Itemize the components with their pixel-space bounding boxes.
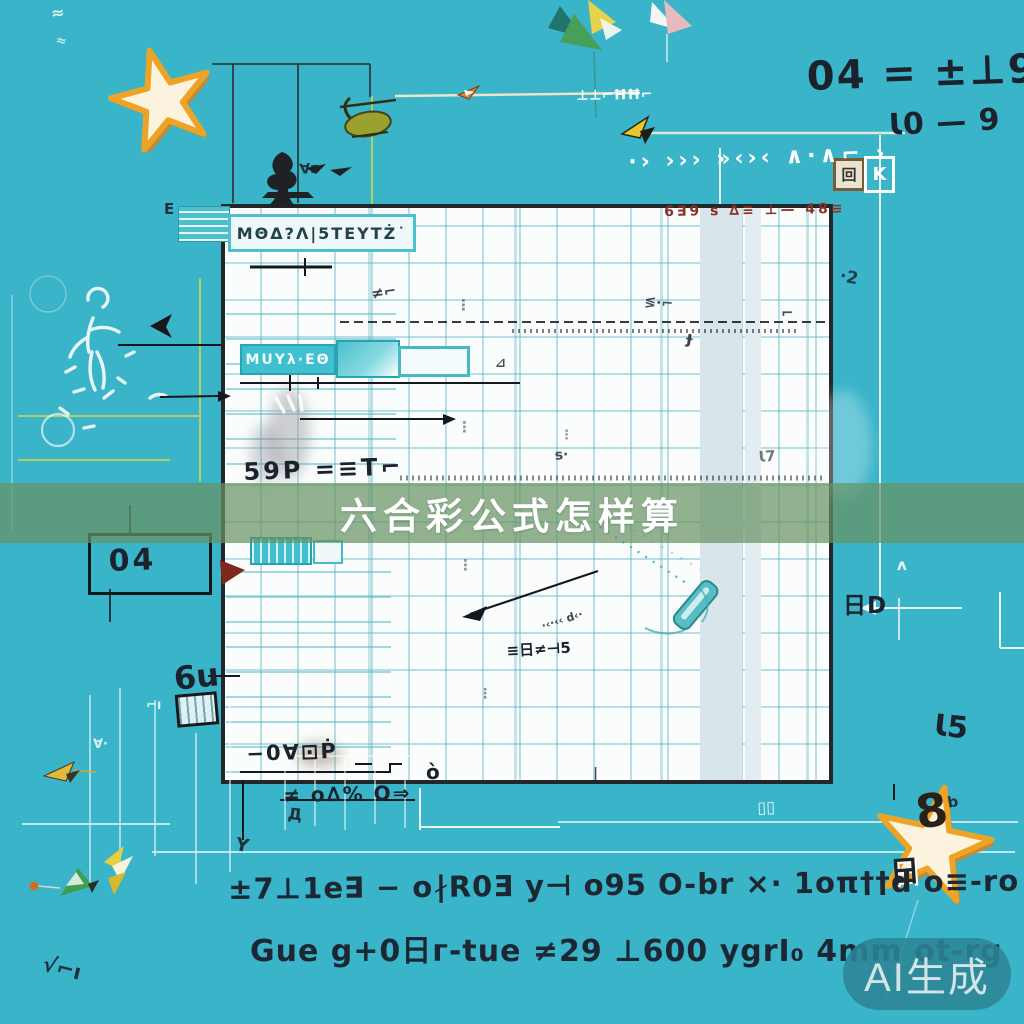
scatter-glyph: ⋮ <box>456 296 471 314</box>
scatter-glyph: ⌐ı <box>146 698 161 713</box>
scatter-glyph: ≠⌐ <box>370 282 397 303</box>
scatter-glyph: √⌐ı <box>40 952 83 985</box>
ai-watermark-label: AI生成 <box>864 945 990 1003</box>
scatter-glyph: s⋅ <box>554 447 569 464</box>
scatter-glyph: | <box>593 766 598 782</box>
scatter-glyph: ▯▯ <box>757 797 775 817</box>
scatter-glyph: ·2 <box>838 266 860 289</box>
ai-generated-illustration: ΜΘΔ?Λ|5ΤΕΥΤŻ˙ ΜUΥλ·ΕΘ 回 K 6∃9 s ∆≡ ⊥— 48… <box>0 0 1024 1024</box>
scatter-glyph: ∀· <box>93 737 108 752</box>
banner-title: 六合彩公式怎样算 <box>340 486 684 540</box>
scatter-glyph: ≈ <box>50 3 65 23</box>
scatter-glyph: ⋮ <box>560 428 573 443</box>
scatter-glyph: Y <box>234 834 251 857</box>
scatter-glyph: ʌ <box>897 556 907 574</box>
scatter-glyph: ⌐ <box>781 304 794 322</box>
scatter-glyph: ≶·⌐ <box>644 294 674 312</box>
scatter-glyph: b <box>946 792 960 812</box>
scatter-glyph: ⋮ <box>478 686 492 702</box>
scatter-glyph: Ε <box>164 200 174 218</box>
scatter-glyph: ⋮ <box>458 556 473 574</box>
scatter-glyph: ⊥⊥⌐ĦĦ⌐ <box>576 87 653 104</box>
scatter-glyph: ⊿ <box>495 356 506 371</box>
scatter-glyph: Ɩ7 <box>758 447 776 466</box>
scatter-glyph: ·‹·‹‹ d‹· <box>540 608 584 633</box>
scatter-glyph: ɟ <box>685 328 694 349</box>
scatter-glyph: ⋮ <box>457 418 472 436</box>
title-banner: 六合彩公式怎样算 <box>0 483 1024 543</box>
scatter-glyph: Д <box>287 804 303 824</box>
ai-watermark-badge: AI生成 <box>843 938 1011 1010</box>
scatter-glyph: ≈ <box>54 33 67 50</box>
scatter-glyph: ∀z· <box>299 160 325 178</box>
